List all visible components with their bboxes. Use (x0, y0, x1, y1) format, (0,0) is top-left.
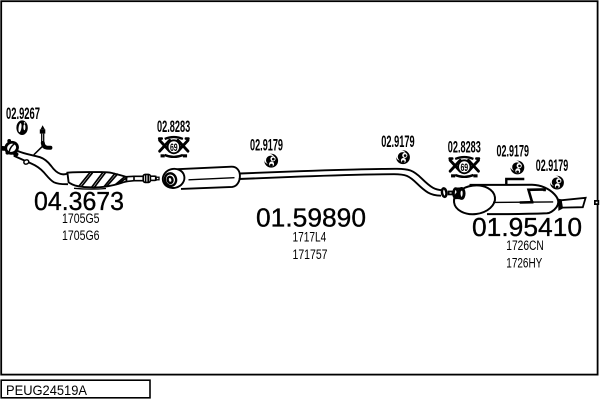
svg-text:02.8283: 02.8283 (448, 138, 481, 156)
svg-text:171757: 171757 (293, 247, 328, 262)
svg-text:1705G6: 1705G6 (62, 228, 100, 243)
svg-text:PEUG24519A: PEUG24519A (6, 382, 88, 398)
svg-text:1726CN: 1726CN (506, 238, 544, 253)
svg-text:1717L4: 1717L4 (293, 229, 327, 244)
svg-text:02.9179: 02.9179 (497, 143, 530, 161)
svg-text:1705G5: 1705G5 (62, 211, 100, 226)
svg-text:02.9267: 02.9267 (6, 105, 40, 123)
svg-text:02.8283: 02.8283 (157, 118, 190, 136)
svg-text:01.59890: 01.59890 (256, 203, 366, 233)
svg-text:02.9179: 02.9179 (536, 157, 568, 175)
svg-text:1726HY: 1726HY (506, 256, 542, 271)
svg-text:02.9179: 02.9179 (250, 137, 283, 155)
svg-text:02.9179: 02.9179 (381, 133, 414, 151)
